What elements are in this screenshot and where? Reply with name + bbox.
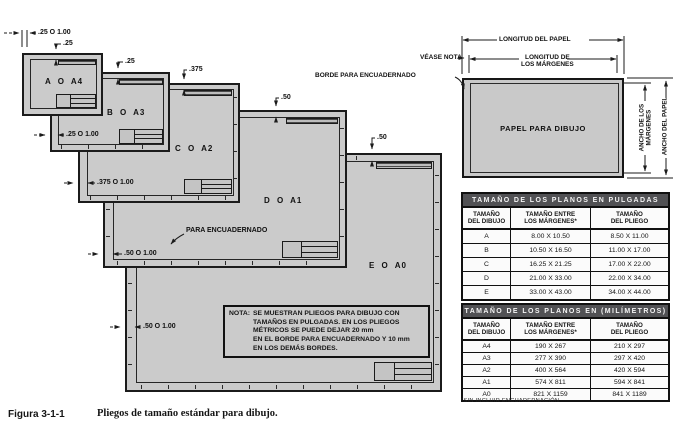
note-line: EN EL BORDE PARA ENCUADERNADO Y 10 mm	[253, 336, 410, 345]
title-block-cell	[120, 130, 135, 143]
note-line: EN LOS DEMÁS BORDES.	[253, 345, 410, 354]
note-line: MÉTRICOS SE PUEDE DEJAR 20 mm	[253, 327, 410, 336]
table-row: A8.00 X 10.508.50 X 11.00	[463, 230, 668, 244]
table-inches: TAMAÑO DE LOS PLANOS EN PULGADAS TAMAÑOD…	[461, 192, 670, 301]
table-row: E33.00 X 43.0034.00 X 44.00	[463, 286, 668, 299]
column-header: TAMAÑODEL PLIEGO	[591, 319, 668, 339]
title-block-rows	[302, 242, 337, 257]
sheet-e-revision-strip	[376, 162, 432, 169]
sheet-d-zone-ticks-bottom	[117, 261, 333, 265]
table-row: A3277 X 390297 X 420	[463, 353, 668, 365]
sheet-c-zone-ticks-bottom	[90, 196, 228, 200]
sheet-a-label: A O A4	[45, 77, 83, 86]
title-block-cell	[185, 180, 202, 193]
dim-margin-length-line1: LONGITUD DE	[521, 54, 574, 61]
dim-b-top-margin: .25	[125, 58, 135, 65]
dim-margin-width-label: ANCHO DE LOS MÁRGENES	[639, 103, 652, 153]
sheet-b-title-block	[119, 129, 163, 144]
sheet-e-title-block	[374, 362, 432, 381]
sheet-a-revision-strip	[58, 60, 96, 65]
dim-margin-length-line2: LOS MÁRGENES	[521, 61, 574, 68]
table-inches-header-row: TAMAÑODEL DIBUJO TAMAÑO ENTRELOS MÁRGENE…	[463, 208, 668, 230]
title-block-cell	[57, 95, 71, 107]
sheet-d-label: D O A1	[264, 196, 302, 205]
dim-margin-length-label: LONGITUD DE LOS MÁRGENES	[521, 54, 574, 68]
paper-center-label: PAPEL PARA DIBUJO	[464, 80, 622, 176]
table-row: A4190 X 267210 X 297	[463, 341, 668, 353]
title-block-rows	[395, 363, 431, 380]
table-millimeters: TAMAÑO DE LOS PLANOS EN (MILÍMETROS) TAM…	[461, 303, 670, 402]
column-header: TAMAÑODEL DIBUJO	[463, 208, 511, 228]
table-inches-title: TAMAÑO DE LOS PLANOS EN PULGADAS	[463, 194, 668, 208]
paper-diagram: PAPEL PARA DIBUJO	[462, 78, 624, 178]
dim-a-left-margin: .25 O 1.00	[38, 29, 71, 36]
dim-b-left-margin: .25 O 1.00	[66, 131, 99, 138]
table-row: C16.25 X 21.2517.00 X 22.00	[463, 258, 668, 272]
column-header: TAMAÑO ENTRELOS MÁRGENES*	[511, 319, 591, 339]
sheet-c-revision-strip	[184, 90, 232, 96]
sheet-b-label: B O A3	[107, 108, 145, 117]
dim-d-left-margin: .50 O 1.00	[124, 250, 157, 257]
sheet-d-revision-strip	[286, 118, 338, 124]
note-lines: SE MUESTRAN PLIEGOS PARA DIBUJO CON TAMA…	[253, 310, 410, 354]
sheet-d-zone-ticks-right	[340, 128, 344, 250]
column-header: TAMAÑODEL PLIEGO	[591, 208, 668, 228]
dim-margin-width-line2: MÁRGENES	[646, 103, 653, 153]
dim-e-left-margin: .50 O 1.00	[143, 323, 176, 330]
sheet-e-zone-ticks-right	[435, 175, 439, 370]
note-box: NOTA: SE MUESTRAN PLIEGOS PARA DIBUJO CO…	[223, 305, 430, 358]
title-block-rows	[135, 130, 162, 143]
dim-paper-width-label: ANCHO DEL PAPEL	[663, 99, 670, 155]
column-header: TAMAÑO ENTRELOS MÁRGENES*	[511, 208, 591, 228]
sheet-d-title-block	[282, 241, 338, 258]
dim-c-top-margin: .375	[189, 66, 203, 73]
sheet-c-label: C O A2	[175, 144, 213, 153]
dim-a-top-margin: .25	[63, 40, 73, 47]
title-block-rows	[71, 95, 95, 107]
table-row: A2400 X 564420 X 594	[463, 365, 668, 377]
binding-edge-label: BORDE PARA ENCUADERNADO	[315, 72, 416, 79]
sheet-a-a4: A O A4	[22, 53, 103, 116]
note-line: SE MUESTRAN PLIEGOS PARA DIBUJO CON	[253, 310, 410, 319]
title-block-cell	[283, 242, 302, 257]
table-mm-header-row: TAMAÑODEL DIBUJO TAMAÑO ENTRELOS MÁRGENE…	[463, 319, 668, 341]
see-note-label: VÉASE NOTA	[420, 54, 462, 61]
dim-paper-length-label: LONGITUD DEL PAPEL	[499, 36, 571, 43]
dim-e-top-margin: .50	[377, 134, 387, 141]
sheet-c-title-block	[184, 179, 232, 194]
caption-number: Figura 3-1-1	[8, 409, 65, 420]
sheet-a-title-block	[56, 94, 96, 108]
note-prefix: NOTA:	[229, 310, 250, 354]
sheet-c-zone-ticks-right	[233, 97, 237, 189]
sheet-e-zone-ticks-bottom	[141, 385, 426, 389]
table-row: B10.50 X 16.5011.00 X 17.00	[463, 244, 668, 258]
column-header: TAMAÑODEL DIBUJO	[463, 319, 511, 339]
title-block-cell	[375, 363, 395, 380]
sheet-b-revision-strip	[119, 79, 163, 85]
table-row: D21.00 X 33.0022.00 X 34.00	[463, 272, 668, 286]
table-row: A1574 X 811594 X 841	[463, 377, 668, 389]
dim-d-top-margin: .50	[281, 94, 291, 101]
figure-canvas: E O A0 D O A1 C O A2 B O A3	[0, 0, 685, 435]
table-mm-title: TAMAÑO DE LOS PLANOS EN (MILÍMETROS)	[463, 305, 668, 319]
title-block-rows	[202, 180, 231, 193]
dim-c-left-margin: .375 O 1.00	[97, 179, 134, 186]
sheet-e-label: E O A0	[369, 261, 407, 270]
binding-callout-label: PARA ENCUADERNADO	[186, 227, 267, 234]
caption-text: Pliegos de tamaño estándar para dibujo.	[97, 408, 278, 419]
sheet-b-zone-ticks-bottom	[61, 145, 159, 149]
table-footnote: *SIN INCLUIR ENCUADERNACIÓN	[461, 398, 559, 404]
